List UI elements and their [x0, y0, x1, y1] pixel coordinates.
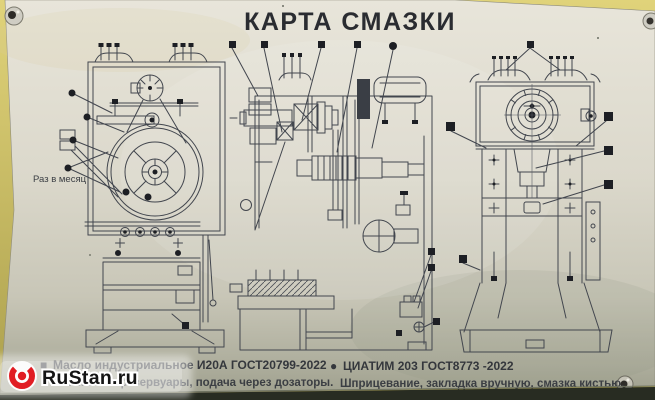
motor-drawing: [137, 75, 163, 101]
lube-point-marker: [389, 42, 397, 50]
lube-point-marker: [459, 255, 467, 263]
lube-point-marker: [84, 114, 91, 121]
page-title: КАРТА СМАЗКИ: [244, 8, 456, 36]
lube-point-marker: [604, 112, 613, 121]
lube-point-marker: [229, 41, 236, 48]
watermark-logo-icon: [7, 361, 37, 391]
lube-point-marker: [261, 41, 268, 48]
photo-of-lubrication-chart-plate: КАРТА СМАЗКИ: [0, 0, 655, 400]
mounting-screw-top-left: [5, 7, 23, 25]
lube-point-marker: [604, 146, 613, 155]
watermark: RuStan.ru: [0, 355, 192, 398]
mounting-screw-top-right: [643, 13, 655, 29]
dust-speck: [89, 254, 91, 256]
grease-symbol: ●: [330, 359, 337, 373]
lube-point-marker: [65, 165, 72, 172]
once-per-month-label: Раз в месяц: [33, 174, 87, 185]
lube-point-marker: [527, 41, 534, 48]
watermark-text: RuStan.ru: [42, 367, 138, 389]
lube-point-marker: [428, 264, 435, 271]
lube-point-marker: [70, 137, 77, 144]
gib-hatch-block: [248, 280, 316, 296]
lube-point-marker: [69, 90, 76, 97]
lube-point-marker: [318, 41, 325, 48]
lube-point-marker: [428, 248, 435, 255]
lube-point-marker: [433, 318, 440, 325]
dust-speck: [282, 5, 284, 7]
lube-point-marker: [446, 122, 455, 131]
hatched-column: [357, 79, 370, 119]
grease-name: ЦИАТИМ 203 ГОСТ8773 -2022: [343, 359, 514, 373]
dust-speck: [597, 37, 599, 39]
lube-point-marker: [604, 180, 613, 189]
lube-point-marker: [354, 41, 361, 48]
